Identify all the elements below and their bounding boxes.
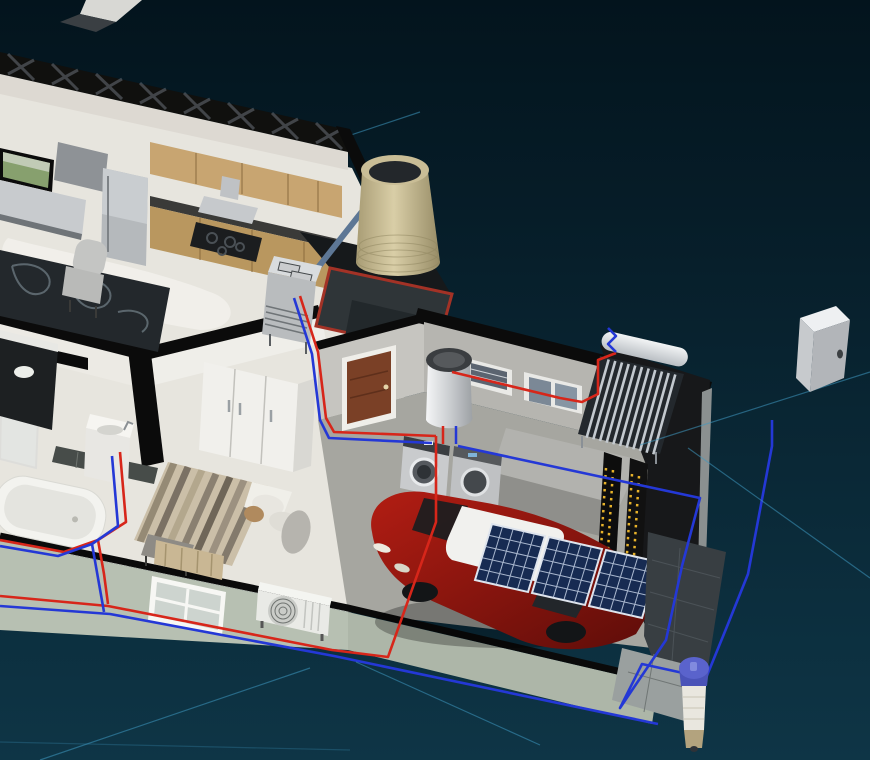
render-viewport: 3D isometric cutaway of a house showing …: [0, 0, 870, 760]
utility-box-port: [837, 350, 843, 359]
door-knob: [384, 385, 389, 390]
filter-base: [684, 730, 704, 748]
interior-door: [342, 345, 396, 431]
dryer-display: [468, 453, 477, 457]
hood-chimney: [220, 176, 240, 200]
vanity-basin: [14, 366, 34, 378]
filter-tip: [690, 746, 698, 752]
car-wheel: [546, 621, 586, 643]
bathroom-sink: [84, 414, 134, 486]
dryer-door: [462, 469, 488, 495]
rainwater-tank: [356, 155, 440, 276]
washing-machine: [400, 436, 450, 498]
home-energy-cutaway: 3D isometric cutaway of a house showing …: [0, 0, 870, 760]
